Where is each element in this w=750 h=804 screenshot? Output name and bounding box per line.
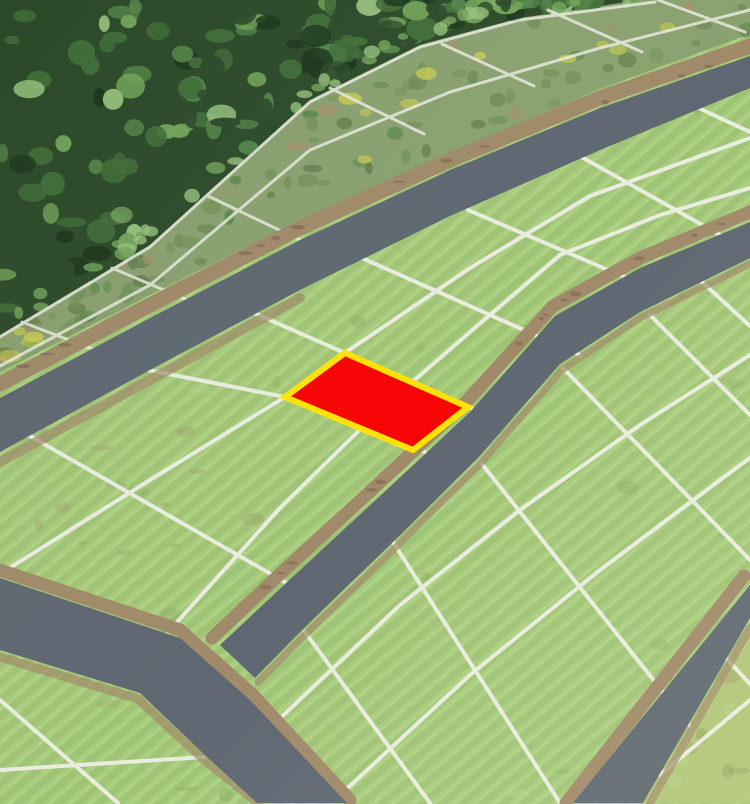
plot-map-canvas (0, 0, 750, 804)
lighting-overlay (0, 0, 750, 804)
aerial-plot-map (0, 0, 750, 804)
